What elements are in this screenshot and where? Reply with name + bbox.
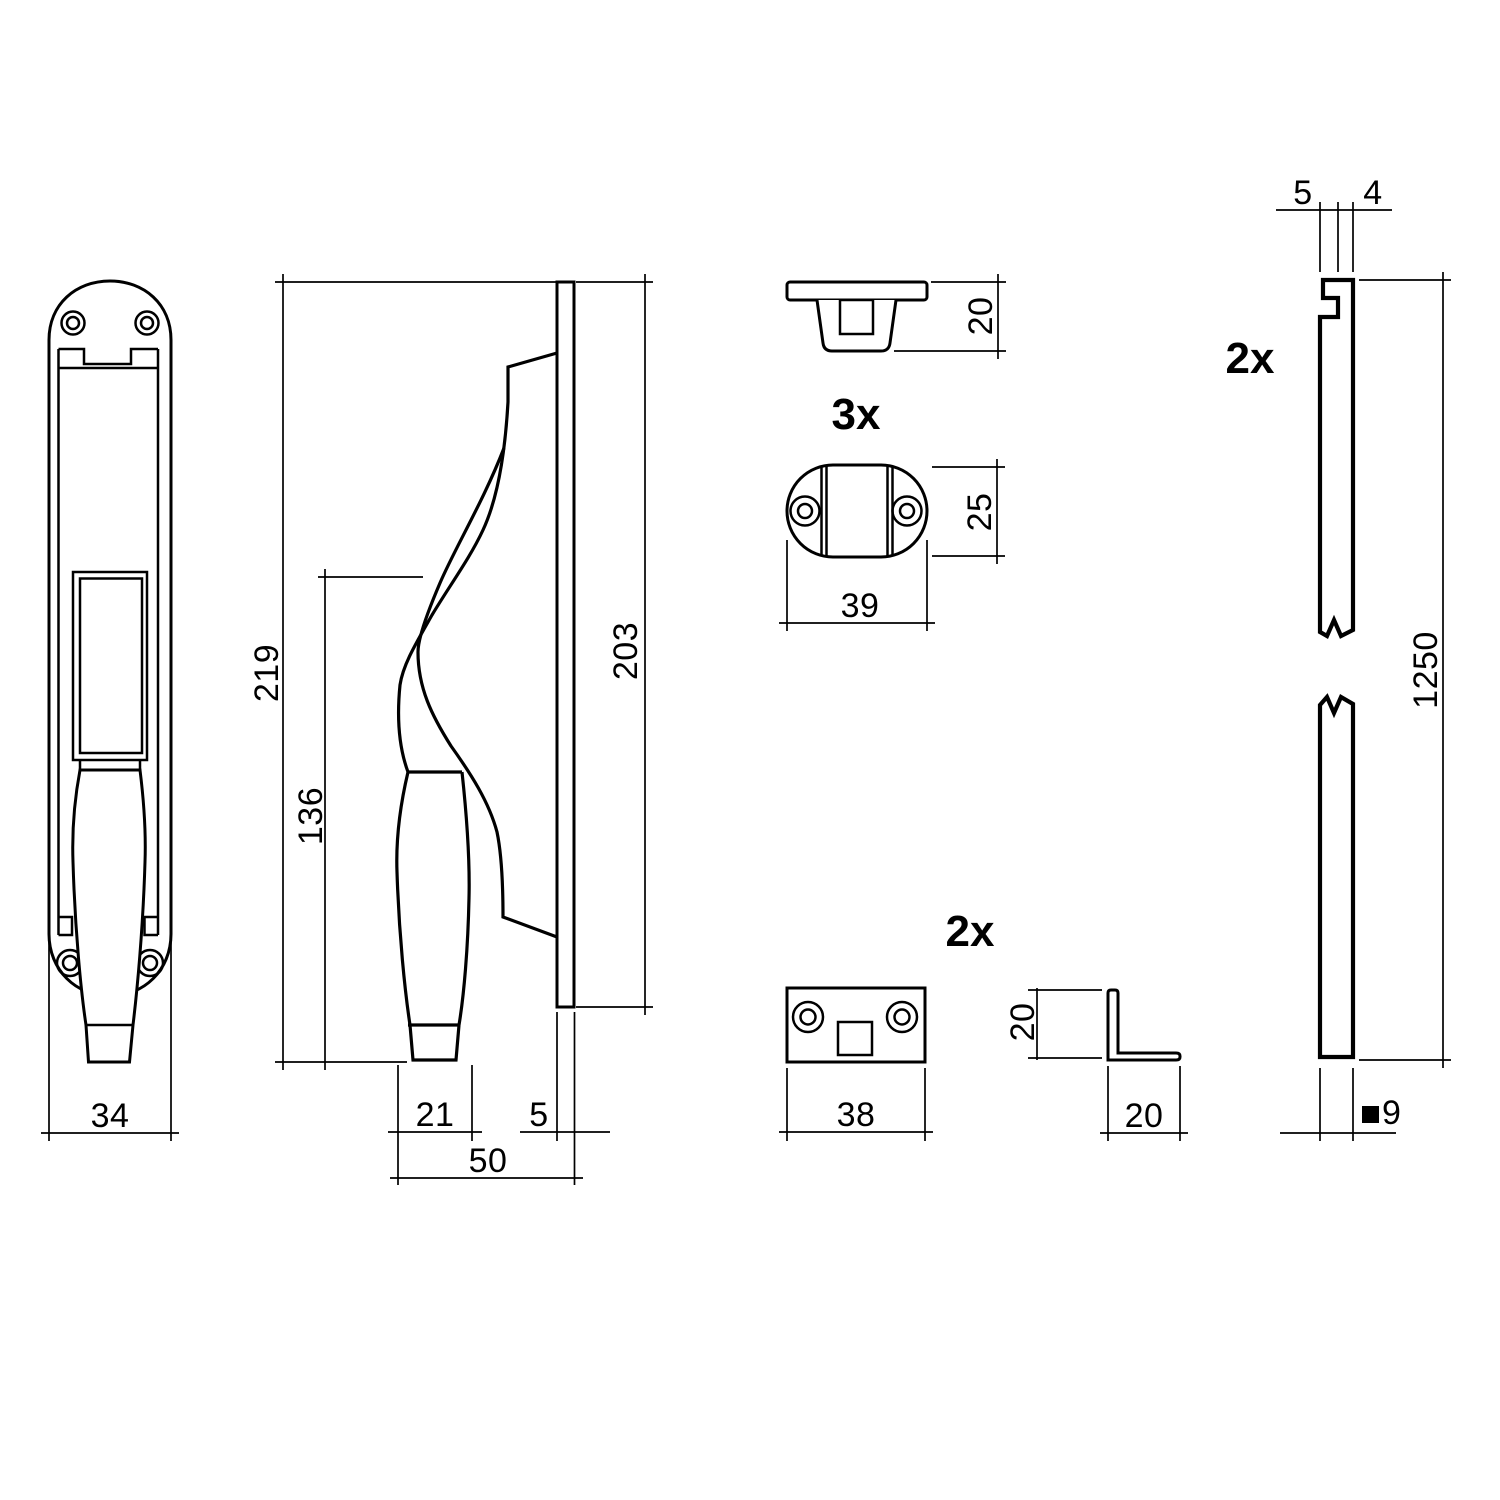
striker-plate: 2x 38 <box>779 907 995 1141</box>
rod-views: 2x 5 4 1250 9 <box>1226 174 1451 1141</box>
dim-label-1250: 1250 <box>1407 631 1445 709</box>
dim-rod-top: 5 4 <box>1276 174 1392 272</box>
oval-guide: 25 39 <box>779 459 1005 631</box>
dim-label-39: 39 <box>841 587 880 625</box>
front-view: 34 <box>41 281 179 1141</box>
dim-label-5: 5 <box>1293 174 1312 212</box>
oval-guide-outline <box>787 465 927 557</box>
dim-bracket-width-20: 20 <box>1100 1066 1188 1141</box>
side-handle-outer-sweep <box>399 353 557 772</box>
dim-rod-square-9: 9 <box>1280 1068 1401 1141</box>
dim-label-50: 50 <box>469 1142 508 1180</box>
dim-label-38: 38 <box>837 1096 876 1134</box>
dim-side-203: 203 <box>576 274 653 1015</box>
side-view: 219 136 203 21 5 50 <box>248 274 653 1185</box>
side-knob-tip <box>410 1025 459 1060</box>
t-guide-flange <box>787 282 927 300</box>
t-guide: 20 3x <box>787 274 1006 439</box>
technical-drawing-page: 34 219 136 203 21 <box>0 0 1500 1500</box>
dim-label-9: 9 <box>1382 1094 1401 1132</box>
t-guide-body <box>817 300 896 351</box>
side-knob-left-edge <box>397 772 410 1025</box>
dim-label-20: 20 <box>1125 1097 1164 1135</box>
dim-label-203: 203 <box>607 622 645 680</box>
dim-label-219: 219 <box>248 644 286 702</box>
dim-label-21: 21 <box>416 1096 455 1134</box>
rod-upper-segment <box>1320 280 1353 636</box>
side-plate <box>557 282 574 1007</box>
bracket-outline <box>1108 990 1180 1060</box>
dim-label-20: 20 <box>962 297 1000 336</box>
corner-bracket: 20 20 <box>1004 988 1188 1141</box>
dim-label-25: 25 <box>961 493 999 532</box>
square-symbol-icon <box>1362 1106 1379 1123</box>
dim-label-4: 4 <box>1363 174 1382 212</box>
rod-lower-segment <box>1320 697 1353 1057</box>
espagnolette-dimension-drawing: 34 219 136 203 21 <box>0 0 1500 1500</box>
dim-bracket-height-20: 20 <box>1004 988 1102 1060</box>
dim-label-20: 20 <box>1004 1003 1042 1042</box>
dim-label-136: 136 <box>292 787 330 845</box>
dim-label-34: 34 <box>91 1097 130 1135</box>
side-knob-right-edge <box>459 772 469 1025</box>
dim-rod-1250: 1250 <box>1359 272 1451 1068</box>
striker-quantity: 2x <box>946 907 995 956</box>
t-guide-quantity: 3x <box>832 390 881 439</box>
dim-label-5: 5 <box>529 1096 548 1134</box>
dim-side-5: 5 <box>520 1012 610 1141</box>
dim-side-21: 21 <box>388 1065 482 1141</box>
dim-oval-25: 25 <box>932 459 1005 564</box>
dim-striker-38: 38 <box>779 1068 933 1141</box>
dim-side-136: 136 <box>292 569 423 1070</box>
front-knob <box>73 770 146 1062</box>
dim-side-50: 50 <box>390 1141 583 1185</box>
rod-quantity: 2x <box>1226 334 1275 383</box>
